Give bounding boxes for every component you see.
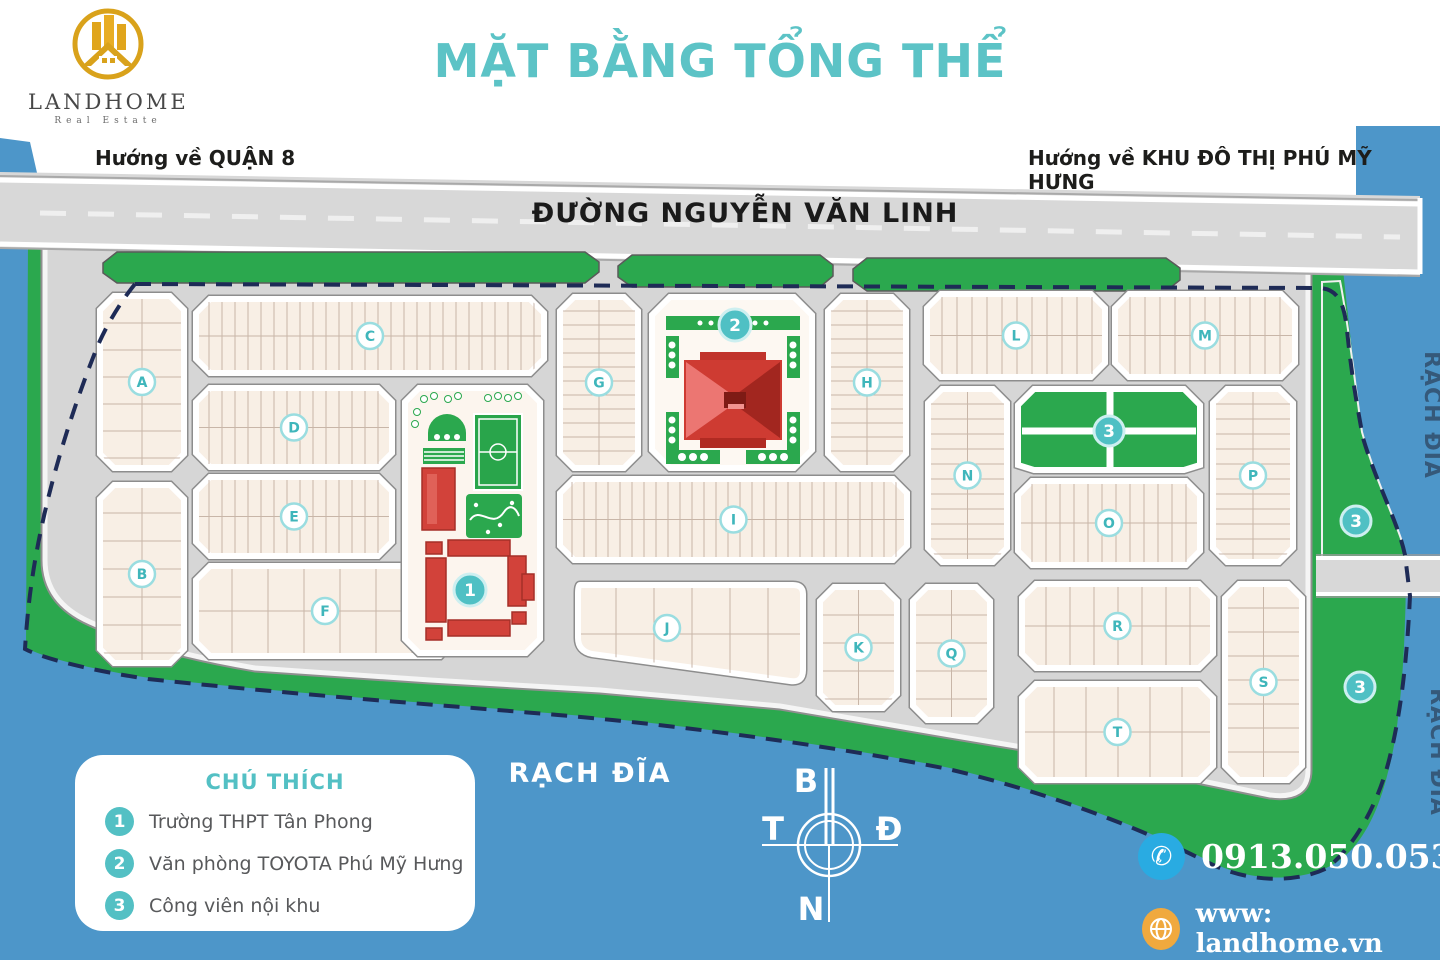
canal-label-bottom: RẠCH ĐĨA xyxy=(508,757,671,789)
globe-icon xyxy=(1142,908,1180,950)
toyota-building xyxy=(684,352,782,448)
block-G: G xyxy=(560,297,638,468)
block-label: Q xyxy=(946,647,958,663)
svg-text:3: 3 xyxy=(1350,512,1362,532)
block-E: E xyxy=(196,477,392,556)
brand-tagline: Real Estate xyxy=(28,116,188,126)
block-label: D xyxy=(288,421,300,437)
svg-text:3: 3 xyxy=(1103,422,1115,442)
compass-north-label: B xyxy=(794,762,818,800)
block-K: K xyxy=(820,587,897,708)
landmark-badge-3: 3 xyxy=(1094,416,1124,446)
legend-items: 1Trường THPT Tân Phong2Văn phòng TOYOTA … xyxy=(75,807,475,920)
phone-icon: ✆ xyxy=(1138,833,1185,880)
svg-text:2: 2 xyxy=(729,316,741,336)
legend-item-label: Công viên nội khu xyxy=(149,895,320,917)
compass-east-label: Đ xyxy=(876,810,903,848)
block-R: R xyxy=(1022,584,1213,668)
legend-item-label: Trường THPT Tân Phong xyxy=(149,811,373,833)
compass-west-label: T xyxy=(762,810,784,848)
block-label: P xyxy=(1248,469,1258,485)
block-B: B xyxy=(100,485,184,663)
block-label: B xyxy=(137,567,148,583)
contact-website-row[interactable]: www: landhome.vn xyxy=(1142,899,1440,959)
legend-item-number: 2 xyxy=(105,849,134,878)
block-O: O xyxy=(1018,481,1200,565)
block-label: I xyxy=(731,513,736,529)
svg-text:1: 1 xyxy=(464,581,476,601)
block-label: G xyxy=(593,376,605,392)
block-label: K xyxy=(853,641,865,657)
masterplan-page: ĐƯỜNG NGUYỄN VĂN LINH ABCDEFGHIJKLMNOPQR… xyxy=(0,0,1440,960)
compass-south-label: N xyxy=(798,890,825,928)
east-exit-road xyxy=(1316,555,1440,597)
direction-label-phumyhung: Hướng về KHU ĐÔ THỊ PHÚ MỸ HƯNG xyxy=(1028,146,1440,194)
block-label: E xyxy=(289,510,299,526)
landmark-badge-3: 3 xyxy=(1341,506,1371,536)
landmark-badge-2: 2 xyxy=(719,309,751,341)
block-label: H xyxy=(861,376,873,392)
block-label: N xyxy=(962,469,974,485)
block-label: J xyxy=(663,621,669,637)
block-A: A xyxy=(100,296,184,468)
block-L: L xyxy=(927,294,1105,377)
legend-item: 2Văn phòng TOYOTA Phú Mỹ Hưng xyxy=(105,849,475,878)
phone-number[interactable]: 0913.050.053 xyxy=(1201,837,1440,876)
block-N: N xyxy=(928,389,1007,562)
block-label: T xyxy=(1113,725,1123,741)
landmark-badge-1: 1 xyxy=(454,574,486,606)
brand-name: LANDHOME xyxy=(28,90,188,114)
block-I: I xyxy=(560,479,907,560)
school-garden xyxy=(466,494,522,538)
block-Q: Q xyxy=(913,587,990,720)
block-P: P xyxy=(1213,389,1293,562)
school-soccer-field xyxy=(474,414,522,490)
legend-item: 1Trường THPT Tân Phong xyxy=(105,807,475,836)
school-building-west xyxy=(422,468,455,530)
legend-title: CHÚ THÍCH xyxy=(75,755,475,794)
legend-item-number: 3 xyxy=(105,891,134,920)
legend-panel: CHÚ THÍCH 1Trường THPT Tân Phong2Văn phò… xyxy=(75,755,475,931)
block-D: D xyxy=(196,388,392,467)
legend-item: 3Công viên nội khu xyxy=(105,891,475,920)
school-block xyxy=(405,388,540,653)
page-title: MẶT BẰNG TỔNG THỂ xyxy=(0,34,1440,88)
school-bleachers xyxy=(423,448,465,464)
block-S: S xyxy=(1225,584,1302,780)
block-label: O xyxy=(1103,516,1115,532)
block-label: F xyxy=(320,604,330,620)
landmark-badge-3: 3 xyxy=(1345,672,1375,702)
block-H: H xyxy=(828,297,906,468)
contact-phone-row[interactable]: ✆ 0913.050.053 xyxy=(1138,833,1440,880)
block-label: S xyxy=(1258,675,1268,691)
block-label: A xyxy=(137,375,148,391)
legend-item-label: Văn phòng TOYOTA Phú Mỹ Hưng xyxy=(149,853,464,875)
legend-item-number: 1 xyxy=(105,807,134,836)
block-label: C xyxy=(365,329,375,345)
canal-label-right-upper: RẠCH ĐĨA xyxy=(1419,351,1440,479)
block-label: M xyxy=(1198,329,1212,345)
svg-text:3: 3 xyxy=(1354,678,1366,698)
block-M: M xyxy=(1115,294,1295,377)
block-label: R xyxy=(1112,619,1123,635)
main-road-label: ĐƯỜNG NGUYỄN VĂN LINH xyxy=(532,193,959,229)
website-url[interactable]: www: landhome.vn xyxy=(1196,899,1440,959)
direction-label-quan8: Hướng về QUẬN 8 xyxy=(95,146,295,170)
canal-label-right-lower: RẠCH ĐĨA xyxy=(1425,688,1440,816)
block-C: C xyxy=(196,299,544,373)
block-T: T xyxy=(1022,684,1213,780)
block-label: L xyxy=(1012,329,1021,345)
